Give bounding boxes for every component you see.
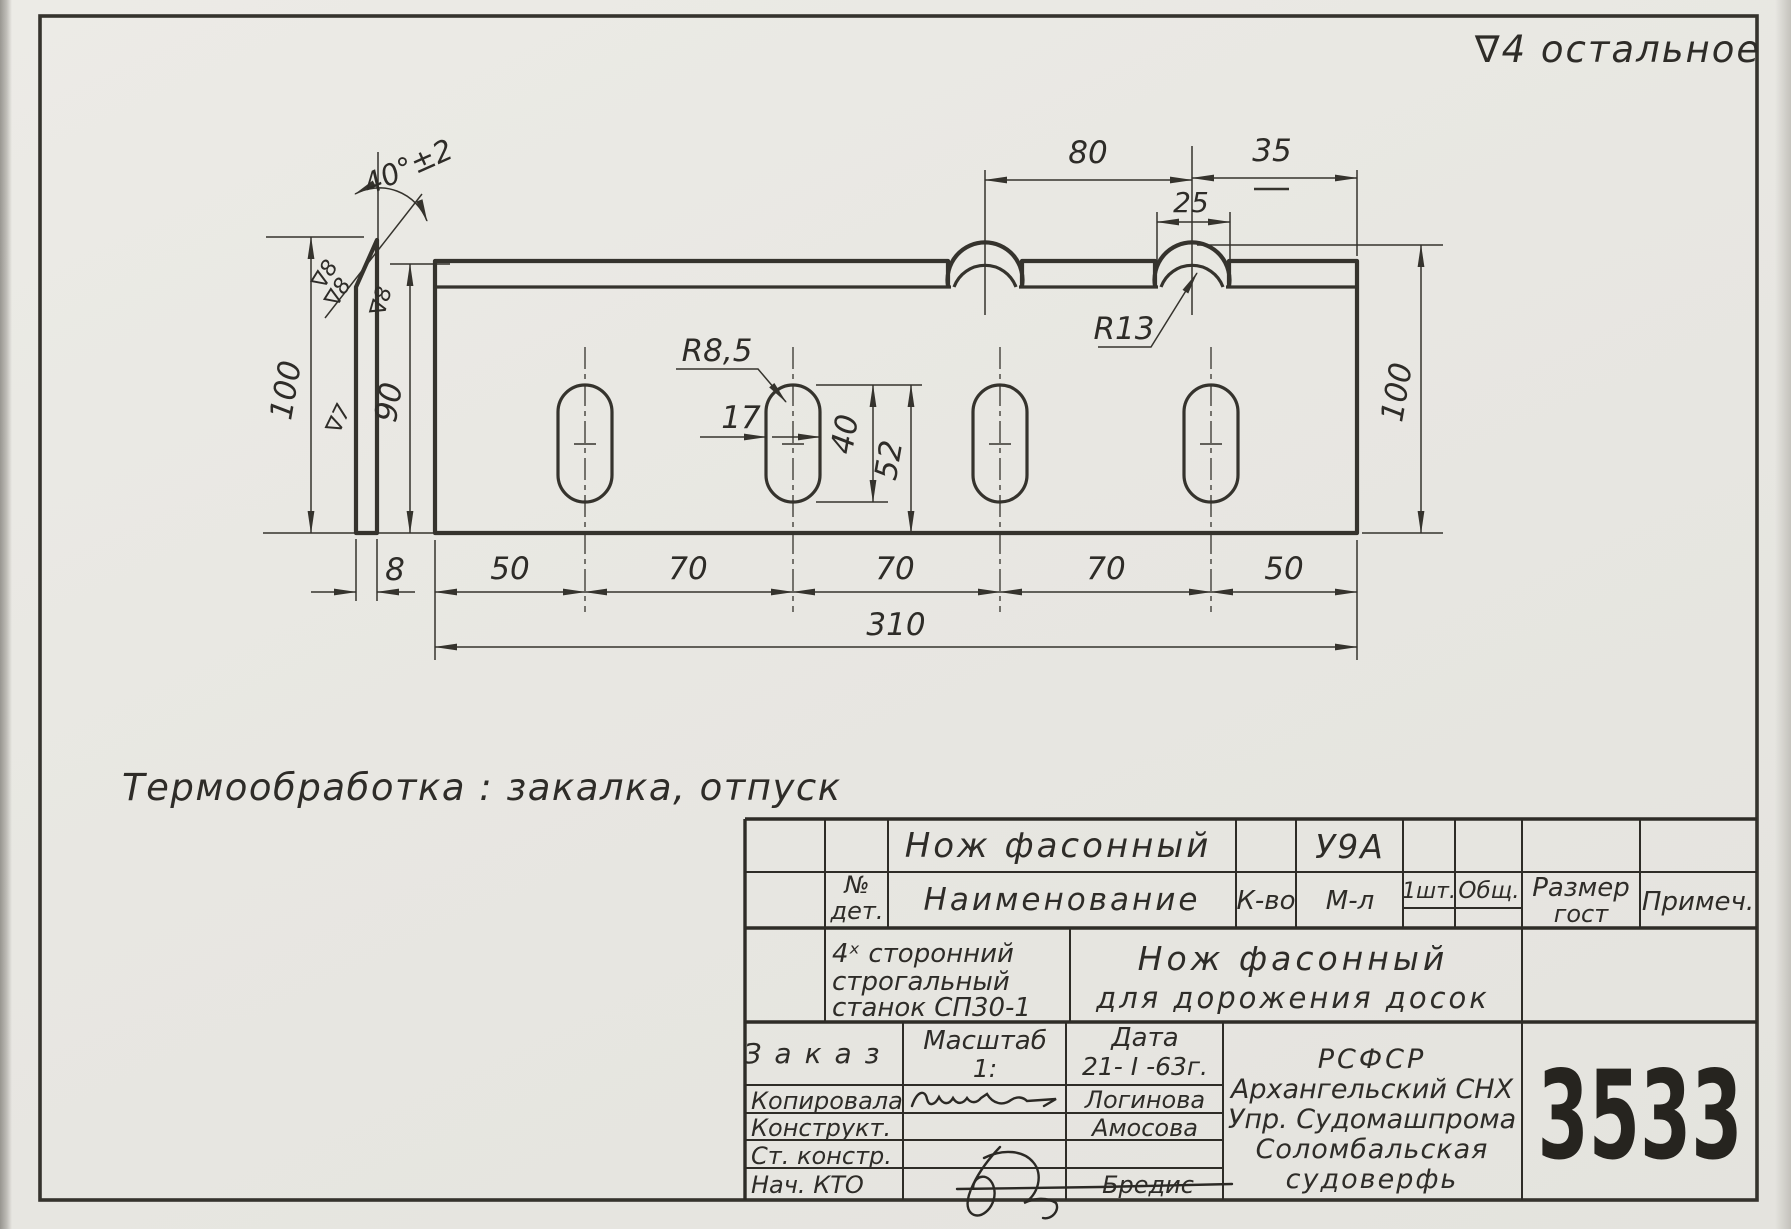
dim-17-label: 17 [721,400,761,436]
scale-label: Масштаб [923,1026,1047,1056]
dim-100-label: 100 [263,358,309,423]
purpose-line2: для дорожения досок [1095,981,1490,1015]
date-label: Дата [1110,1023,1178,1053]
senior-designer-label: Ст. констр. [751,1142,892,1170]
dim-310-label: 310 [866,607,925,643]
org-line1: РСФСР [1318,1044,1427,1075]
header-size-1: Размер [1532,873,1630,903]
dim-seg3-label: 70 [875,551,914,587]
front-view: 80 35 25 R13 R8,5 17 40 [435,133,1443,660]
dim-seg4-label: 70 [1086,551,1125,587]
dim-r85-label: R8,5 [682,333,753,369]
dim-seg1-label: 50 [490,551,529,587]
header-det-no-2: дет. [830,897,884,925]
dim-25-label: 25 [1173,186,1209,219]
finish-mark-face: ∇7 [321,401,356,439]
org-line2: Архангельский СНХ [1229,1074,1514,1105]
org-line3: Упр. Судомашпрома [1228,1104,1516,1135]
dim-8-label: 8 [385,552,405,588]
title-block: Нож фасонный У9А № дет. Наименование К-в… [743,819,1757,1218]
surface-finish-note: ∇4 остальное [1474,28,1761,71]
side-view: 40°±2 ∇8 ∇8 ∇8 ∇7 100 90 8 [263,132,458,601]
copied-name: Логинова [1084,1086,1205,1114]
dim-seg2-label: 70 [668,551,707,587]
angle-dim: 40°±2 [358,132,458,201]
designer-name: Амосова [1090,1114,1198,1142]
chief-kto-label: Нач. КТО [751,1171,864,1199]
purpose-line1: Нож фасонный [1138,939,1449,978]
drawing-canvas: 40°±2 ∇8 ∇8 ∇8 ∇7 100 90 8 [0,0,1791,1229]
header-size-2: гост [1554,900,1609,928]
dim-r13-label: R13 [1094,311,1155,347]
designer-label: Конструкт. [751,1114,891,1142]
dim-35-label: 35 [1252,133,1291,169]
heat-treatment-note: Термообработка : закалка, отпуск [122,766,842,809]
header-qty: К-во [1236,886,1295,916]
dim-52-label: 52 [868,438,910,483]
date-value: 21- I -63г. [1082,1052,1208,1081]
machine-line3: станок СП30-1 [832,993,1031,1023]
machine-line1: 4ˣ сторонний [832,939,1014,969]
header-det-no-1: № [843,871,870,899]
header-per-item: 1шт. [1402,879,1456,904]
drawing-sheet: 40°±2 ∇8 ∇8 ∇8 ∇7 100 90 8 [0,0,1791,1229]
dim-90-label: 90 [368,380,410,425]
drawing-number: 3533 [1538,1045,1743,1187]
material-grade: У9А [1315,827,1385,866]
dim-40-label: 40 [824,412,866,457]
org-line5: судоверфь [1286,1164,1459,1195]
scale-value: 1: [973,1054,997,1083]
dim-80-label: 80 [1068,135,1107,171]
signature-copier [912,1093,1056,1106]
part-name-header: Нож фасонный [905,826,1212,866]
header-total: Общ. [1458,878,1519,904]
org-line4: Соломбальская [1256,1134,1489,1165]
finish-mark-edge: ∇8 [366,284,398,319]
header-name: Наименование [924,882,1201,918]
header-note: Примеч. [1642,887,1754,917]
order-label: Заказ [743,1037,892,1070]
header-material: М-л [1326,886,1374,916]
dim-100r-label: 100 [1374,360,1420,425]
dim-seg5-label: 50 [1264,551,1303,587]
copied-label: Копировала [751,1087,903,1115]
